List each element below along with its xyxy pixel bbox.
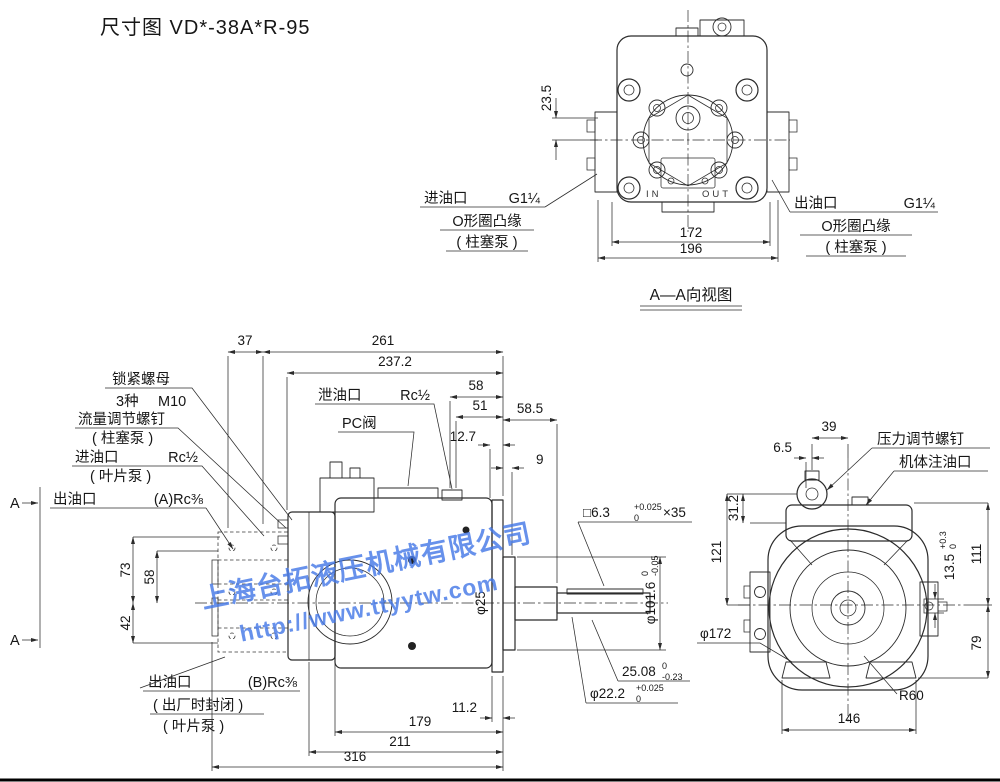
key-tol-top: +0.025	[634, 502, 662, 512]
filler-port-label: 机体注油口	[899, 454, 972, 471]
outlet-port-size: G1¼	[904, 196, 936, 212]
outlet-pump-type: ( 柱塞泵 )	[825, 238, 886, 256]
outlet-a-label: 出油口	[53, 491, 97, 508]
outlet-flange-label: O形圈凸缘	[821, 218, 890, 235]
dim-6-5: 6.5	[773, 440, 792, 455]
key-tol-bottom: 0	[634, 513, 639, 523]
dim-73: 73	[118, 562, 133, 577]
rear-view-labels: 压力调节螺钉 机体注油口	[827, 431, 990, 505]
lock-nut-label: 锁紧螺母	[112, 371, 170, 388]
dim-58-5: 58.5	[517, 401, 543, 416]
dim-111: 111	[969, 544, 984, 565]
dim-196: 196	[680, 241, 703, 256]
side-view-labels: 泄油口 Rc½ PC阀 锁紧螺母 3种 M10 流量调节螺钉 ( 柱塞泵 ) 进…	[50, 371, 452, 549]
inlet-flange-label: O形圈凸缘	[452, 213, 521, 230]
dim-37: 37	[237, 333, 252, 348]
section-markers: A A	[10, 487, 40, 649]
dim-146: 146	[838, 711, 861, 726]
side-view-bottom-dimensions: 11.2 179 211 316	[212, 642, 515, 771]
flow-screw-label: 流量调节螺钉	[78, 411, 165, 428]
drain-port-label: 泄油口	[318, 387, 362, 404]
key-height-tol-bottom: -0.23	[662, 672, 683, 682]
dim-51: 51	[472, 398, 487, 413]
key-spec: □6.3	[583, 505, 610, 520]
view-caption: A—A向视图	[650, 286, 733, 304]
dim-12-7: 12.7	[450, 429, 476, 444]
lock-nut-thread: M10	[158, 394, 186, 410]
shaft-diameter: φ22.2	[590, 686, 625, 701]
dim-261: 261	[372, 333, 395, 348]
dim-13-5-tol-top: +0.3	[938, 531, 948, 549]
top-view: IN OUT 23.5 172 196 进油口 G1¼ O形圈凸缘 ( 柱塞泵 …	[420, 10, 938, 310]
dim-42: 42	[118, 615, 133, 630]
flow-screw-pump-type: ( 柱塞泵 )	[92, 429, 153, 447]
dim-316: 316	[344, 749, 367, 764]
key-length: ×35	[663, 505, 686, 520]
dim-23-5: 23.5	[539, 85, 554, 111]
watermark: 上海台拓液压机械有限公司 http://www.ttyytw.com	[198, 517, 533, 647]
drain-port-size: Rc½	[400, 388, 430, 404]
dim-31-2: 31.2	[726, 495, 741, 521]
vane-inlet-size: Rc½	[168, 450, 198, 466]
side-view-bottom-labels: 出油口 (B)Rc⅜ ( 出厂时封闭 ) ( 叶片泵 )	[140, 657, 300, 735]
vane-inlet-label: 进油口	[75, 449, 119, 466]
dim-211: 211	[389, 734, 411, 749]
outlet-b-pump-type: ( 叶片泵 )	[163, 718, 224, 735]
pc-valve-label: PC阀	[342, 415, 377, 432]
side-view: A A 37 261 237.2 58 51 58.5 12.7 9	[10, 333, 692, 771]
pressure-screw-label: 压力调节螺钉	[877, 431, 964, 448]
dim-121: 121	[709, 541, 724, 564]
dim-39: 39	[821, 419, 836, 434]
dim-11-2: 11.2	[452, 700, 477, 715]
dim-13-5-tol-bottom: 0	[948, 544, 958, 549]
dim-179: 179	[409, 714, 432, 729]
outlet-b-note: ( 出厂时封闭 )	[153, 697, 243, 714]
outlet-a-size: (A)Rc⅜	[154, 492, 204, 508]
section-marker-a-top: A	[10, 496, 20, 512]
out-port-marking: OUT	[702, 189, 731, 200]
dim-237-2: 237.2	[378, 354, 412, 369]
section-marker-a-bottom: A	[10, 633, 20, 649]
key-height: 25.08	[622, 664, 656, 679]
dim-13-5: 13.5	[942, 554, 957, 580]
dim-9: 9	[536, 452, 544, 467]
dim-58-top: 58	[468, 378, 483, 393]
rear-view: 39 6.5 31.2 121 φ172 13.5 +0.3 0 111	[697, 419, 992, 734]
dimension-drawing: 尺寸图 VD*-38A*R-95	[0, 0, 1000, 782]
outlet-b-size: (B)Rc⅜	[248, 675, 298, 691]
dim-79: 79	[969, 635, 984, 650]
dim-r60: R60	[899, 688, 924, 703]
pilot-tol-top: 0	[640, 571, 650, 576]
rear-view-drawing	[738, 458, 968, 722]
lock-nut-qty: 3种	[116, 393, 139, 410]
pilot-tol-bottom: -0.05	[650, 555, 660, 576]
vane-inlet-pump-type: ( 叶片泵 )	[90, 468, 151, 485]
inlet-port-size: G1¼	[509, 191, 541, 207]
dim-58-left: 58	[142, 569, 157, 584]
drawing-sheet: 尺寸图 VD*-38A*R-95	[0, 0, 1000, 782]
shaft-tol-top: +0.025	[636, 683, 664, 693]
outlet-port-label: 出油口	[794, 195, 838, 212]
key-height-tol-top: 0	[662, 661, 667, 671]
top-view-drawing: IN OUT	[587, 10, 797, 232]
pilot-diameter: φ101.6	[643, 582, 658, 625]
dim-phi-172: φ172	[700, 626, 731, 641]
in-port-marking: IN	[646, 189, 662, 200]
shaft-tol-bottom: 0	[636, 694, 641, 704]
inlet-pump-type: ( 柱塞泵 )	[456, 233, 517, 251]
page-title: 尺寸图 VD*-38A*R-95	[100, 16, 311, 39]
dim-172: 172	[680, 225, 703, 240]
inlet-port-label: 进油口	[424, 190, 468, 207]
